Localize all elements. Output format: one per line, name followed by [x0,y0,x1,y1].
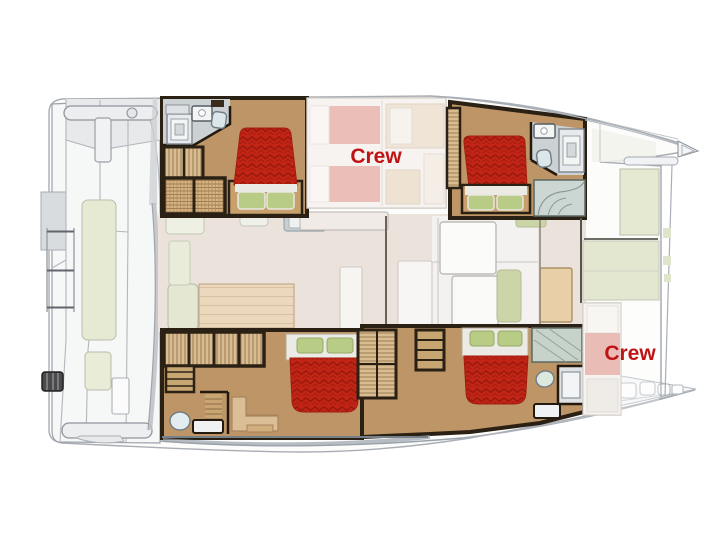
svg-text:Crew: Crew [350,145,402,168]
svg-text:Crew: Crew [604,342,656,365]
